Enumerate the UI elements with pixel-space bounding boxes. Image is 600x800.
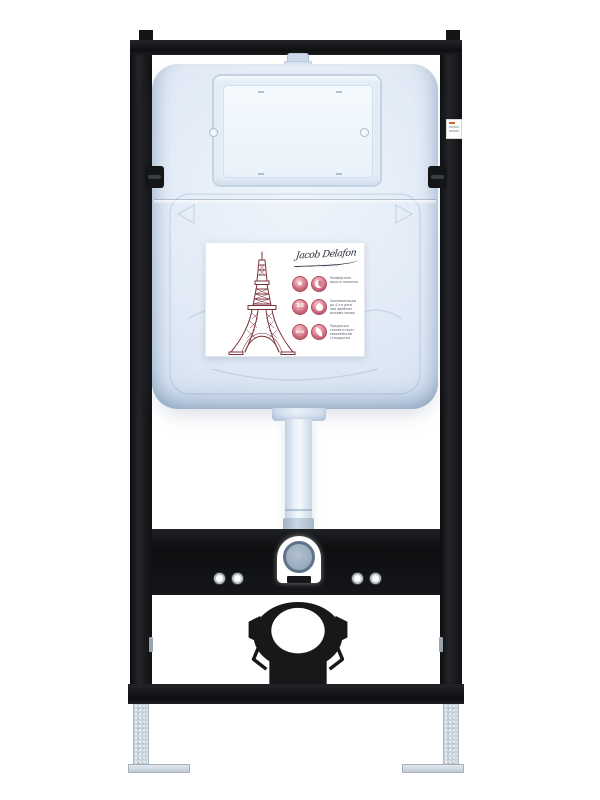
mold-tick (336, 173, 342, 175)
product-photo: Jacob Delafon PARIS ★ Комфортная высота … (0, 0, 600, 800)
mounting-hole (232, 573, 243, 584)
feature-text: Комфортная высота нажатия (330, 276, 358, 284)
feature-row: 10 Экономия воды до 4 л в день при двойн… (292, 299, 358, 315)
mold-tick (258, 91, 264, 93)
feature-text: Продукция соответствует европейским стан… (330, 324, 358, 340)
flush-bend-seal (283, 541, 315, 573)
cistern-bracket-right (428, 166, 447, 188)
flush-pipe-joint (285, 509, 312, 511)
panel-screw-right (360, 128, 369, 137)
frame-post-right (440, 40, 462, 704)
warranty-10-icon: 10 (292, 299, 308, 315)
brand-city: PARIS (318, 264, 362, 268)
mold-tick (258, 173, 264, 175)
star-icon: ★ (292, 276, 308, 292)
adjustable-foot-right (443, 704, 459, 766)
flush-pipe (285, 419, 312, 522)
access-panel-inner (223, 85, 373, 178)
eiffel-tower-illustration (226, 251, 298, 355)
frame-crossbar-bottom (128, 684, 464, 704)
foot-plate-right (402, 764, 464, 773)
flush-plate-access-panel (212, 74, 382, 187)
mounting-hole (214, 573, 225, 584)
adjustable-foot-left (133, 704, 149, 766)
panel-screw-left (209, 128, 218, 137)
feature-row: ★ Комфортная высота нажатия (292, 276, 358, 292)
mold-tick (336, 91, 342, 93)
foot-plate-left (128, 764, 190, 773)
mounting-hole (352, 573, 363, 584)
comfort-swirl-icon (311, 276, 327, 292)
info-sticker (446, 119, 462, 139)
eco-icon: eco (292, 324, 308, 340)
pipe-clip-left (149, 637, 153, 652)
pipe-clip-right (439, 637, 443, 652)
frame-post-left (130, 40, 152, 704)
mounting-hole (370, 573, 381, 584)
waste-pipe-clamp (246, 600, 350, 685)
feature-text: Экономия воды до 4 л в день при двойном … (330, 299, 358, 315)
fitting-slot (287, 576, 311, 583)
cistern-lid-seam (154, 199, 436, 204)
leaf-icon (311, 324, 327, 340)
brand-label-card: Jacob Delafon PARIS ★ Комфортная высота … (205, 242, 365, 357)
feature-row: eco Продукция соответствует европейским … (292, 324, 358, 340)
cistern-bracket-left (145, 166, 164, 188)
water-drop-icon (311, 299, 327, 315)
